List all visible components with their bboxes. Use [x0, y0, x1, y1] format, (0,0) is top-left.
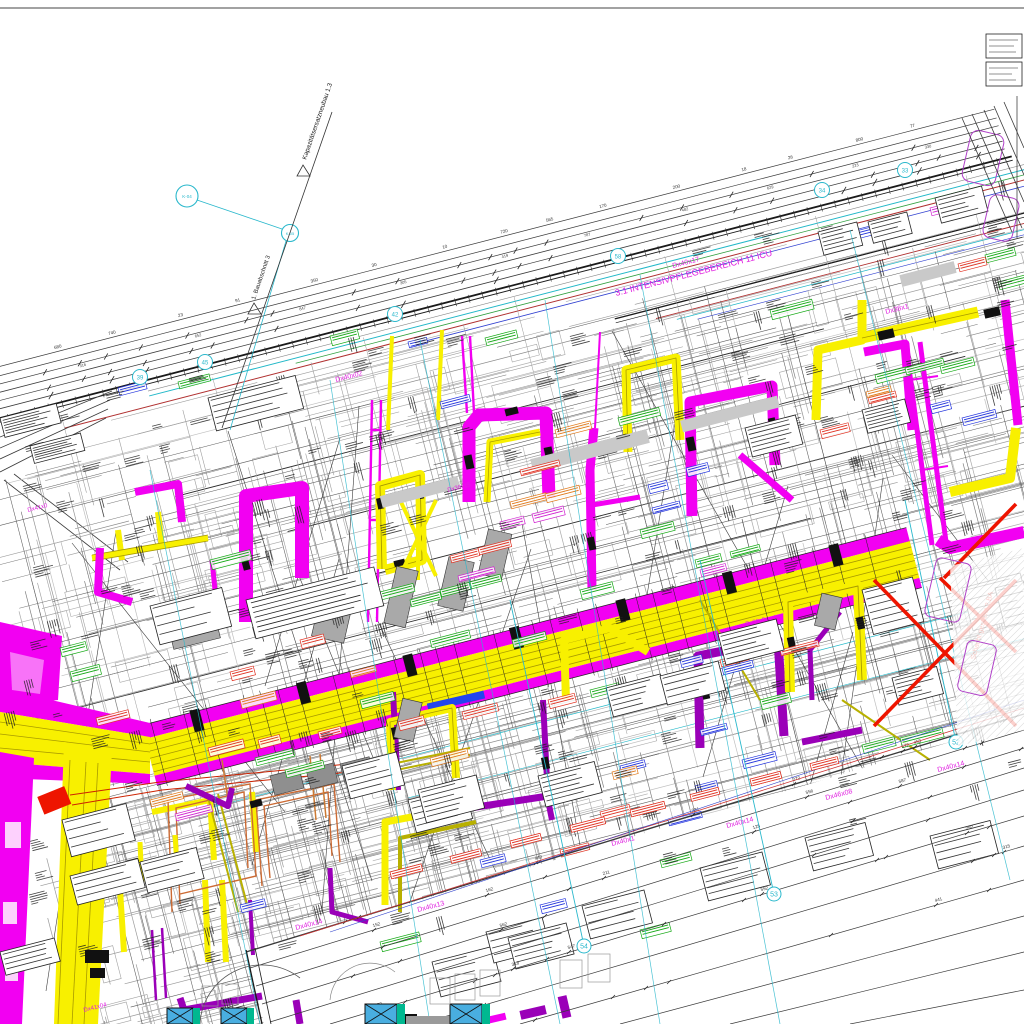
svg-text:K-04: K-04 — [182, 194, 192, 199]
svg-text:39: 39 — [137, 376, 144, 382]
svg-text:45: 45 — [202, 361, 209, 367]
svg-text:34: 34 — [819, 189, 826, 195]
svg-text:53: 53 — [770, 892, 778, 899]
svg-text:33: 33 — [902, 169, 909, 175]
svg-text:54: 54 — [580, 944, 588, 951]
svg-text:58: 58 — [615, 255, 622, 261]
svg-text:42: 42 — [392, 313, 399, 319]
